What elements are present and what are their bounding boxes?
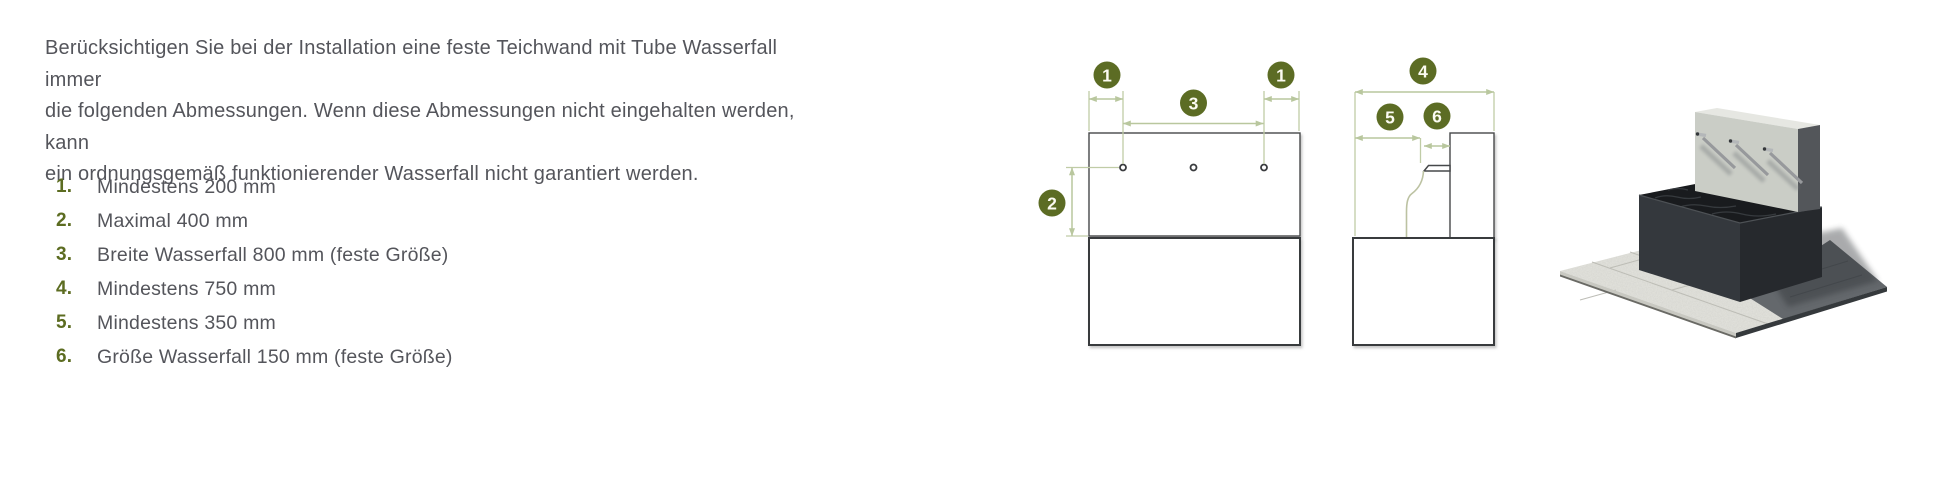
platform-edge-left-shadow [1560,275,1736,339]
stream-shadow [1701,146,1731,174]
paving-dark [1745,240,1887,319]
marker-number: 6 [1432,107,1442,127]
tube-icon [1730,141,1739,143]
manual-page: Berücksichtigen Sie bei der Installation… [0,0,1946,481]
wall-top-face [1695,108,1820,129]
wall-outline [1450,133,1494,238]
marker-circle [1039,190,1066,217]
marker-circle [1180,90,1207,117]
marker-4: 4 [1410,58,1437,85]
intro-line-1: Berücksichtigen Sie bei der Installation… [45,33,805,96]
stream-shadow [1734,153,1764,181]
marker-circle [1410,58,1437,85]
water-surface [1639,179,1822,223]
list-item: 6. Größe Wasserfall 150 mm (feste Größe) [56,346,453,380]
list-item-text: Mindestens 350 mm [97,312,276,335]
list-item-number: 1. [56,176,80,198]
marker-5: 5 [1377,104,1404,131]
platform-edge-left [1560,271,1736,338]
side-view-diagram: 4 5 6 [1353,58,1494,346]
mounting-hole [1120,165,1126,171]
tube-spouts [1696,132,1802,189]
marker-3: 3 [1180,90,1207,117]
water-stream [1703,138,1735,168]
water-profile-curve [1407,171,1424,237]
spout-lip [1424,166,1450,172]
mounting-hole [1261,165,1267,171]
list-item-text: Maximal 400 mm [97,210,248,233]
list-item-number: 2. [56,210,80,232]
product-render [1560,108,1887,339]
dimension-list: 1. Mindestens 200 mm 2. Maximal 400 mm 3… [56,176,453,380]
tube-outlet-icon [1696,132,1699,135]
intro-paragraph: Berücksichtigen Sie bei der Installation… [45,33,805,191]
pond-outline [1353,238,1494,345]
tube-icon [1697,134,1706,136]
tube-icon [1764,149,1773,151]
marker-number: 1 [1276,66,1286,86]
marker-circle [1377,104,1404,131]
marker-circle [1094,62,1121,89]
basin-right-face [1740,207,1822,302]
marker-number: 4 [1418,62,1428,82]
list-item: 2. Maximal 400 mm [56,210,453,244]
paving-texture [1560,235,1887,333]
platform-edge-right [1736,287,1887,338]
pond-outline [1089,238,1300,345]
marker-1-right: 1 [1268,62,1295,89]
list-item: 4. Mindestens 750 mm [56,278,453,312]
list-item-text: Breite Wasserfall 800 mm (feste Größe) [97,244,448,267]
cast-shadow [1750,228,1878,307]
marker-number: 1 [1102,66,1112,86]
list-item: 3. Breite Wasserfall 800 mm (feste Größe… [56,244,453,278]
tube-outlet-icon [1729,139,1732,142]
tube-outlet-icon [1763,147,1766,150]
list-item-text: Größe Wasserfall 150 mm (feste Größe) [97,346,453,369]
marker-1-left: 1 [1094,62,1121,89]
water-stream [1736,145,1768,175]
stream-shadow [1768,161,1798,189]
wall-outline [1089,133,1300,236]
paving-light [1560,235,1887,333]
water-ripples [1655,189,1776,217]
list-item-number: 5. [56,312,80,334]
basin-front-face [1639,195,1740,302]
paving-dark-seams [1776,261,1862,297]
marker-circle [1424,103,1451,130]
marker-number: 3 [1189,94,1199,114]
marker-number: 5 [1385,108,1395,128]
list-item: 1. Mindestens 200 mm [56,176,453,210]
marker-circle [1268,62,1295,89]
intro-line-2: die folgenden Abmessungen. Wenn diese Ab… [45,96,805,159]
list-item-number: 3. [56,244,80,266]
mounting-hole [1191,165,1197,171]
list-item: 5. Mindestens 350 mm [56,312,453,346]
water-stream [1770,153,1802,183]
paving-seams [1580,252,1806,324]
list-item-text: Mindestens 200 mm [97,176,276,199]
basin-rim-edge [1639,195,1822,223]
wall-front-face [1695,112,1798,212]
wall-side-face [1798,125,1820,212]
marker-number: 2 [1047,194,1057,214]
list-item-number: 4. [56,278,80,300]
marker-2: 2 [1039,190,1066,217]
marker-6: 6 [1424,103,1451,130]
front-view-diagram: 1 1 3 2 [1039,62,1301,346]
list-item-number: 6. [56,346,80,368]
list-item-text: Mindestens 750 mm [97,278,276,301]
